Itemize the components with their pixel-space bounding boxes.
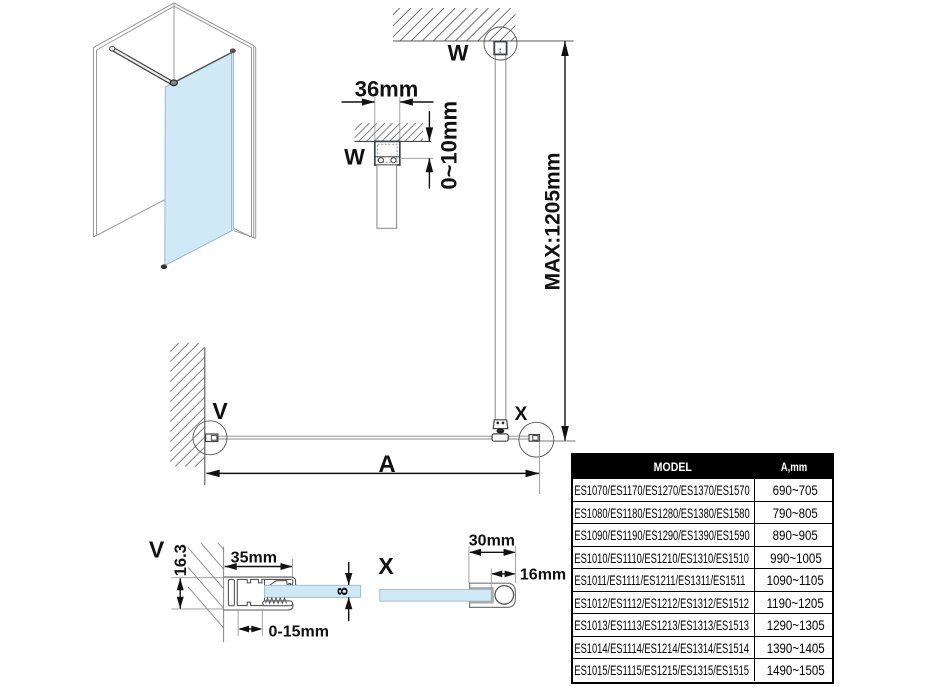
svg-text:16.3: 16.3	[172, 544, 190, 576]
svg-text:X: X	[515, 404, 528, 425]
svg-text:W: W	[344, 145, 365, 170]
svg-text:30mm: 30mm	[469, 533, 515, 550]
svg-text:8: 8	[335, 587, 352, 595]
svg-text:MAX:1205mm: MAX:1205mm	[542, 153, 565, 291]
svg-text:0-15mm: 0-15mm	[269, 623, 329, 640]
svg-text:V: V	[149, 537, 165, 563]
svg-text:X: X	[378, 553, 394, 579]
svg-text:35mm: 35mm	[231, 550, 277, 567]
svg-text:16mm: 16mm	[520, 567, 566, 584]
svg-text:A: A	[378, 451, 395, 478]
svg-text:V: V	[212, 398, 228, 424]
svg-text:W: W	[448, 41, 469, 66]
svg-text:36mm: 36mm	[355, 77, 419, 102]
svg-text:0~10mm: 0~10mm	[437, 101, 462, 190]
